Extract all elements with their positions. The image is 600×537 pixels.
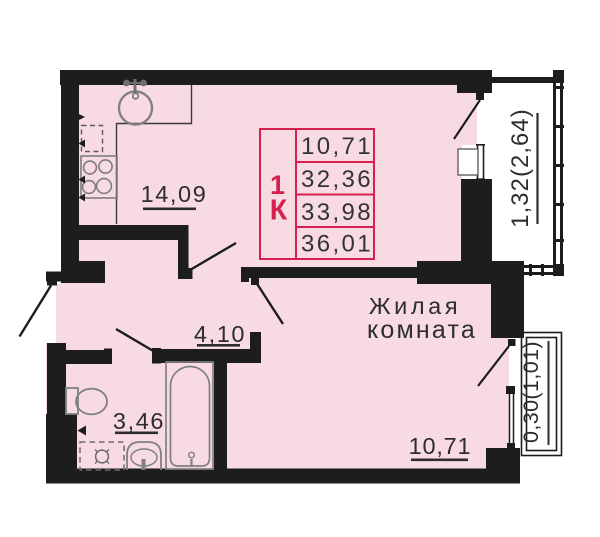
svg-text:1,32(2,64): 1,32(2,64) [507,108,534,227]
svg-text:0,30(1,01): 0,30(1,01) [519,341,543,443]
svg-text:10,71: 10,71 [301,133,373,160]
svg-text:комната: комната [367,316,477,344]
svg-text:32,36: 32,36 [301,166,373,193]
svg-text:4,10: 4,10 [194,321,246,347]
svg-text:10,71: 10,71 [409,433,472,459]
svg-text:3,46: 3,46 [113,408,165,434]
svg-text:14,09: 14,09 [141,181,208,207]
svg-text:36,01: 36,01 [301,231,373,258]
svg-text:33,98: 33,98 [301,199,373,226]
svg-text:К: К [270,195,288,227]
